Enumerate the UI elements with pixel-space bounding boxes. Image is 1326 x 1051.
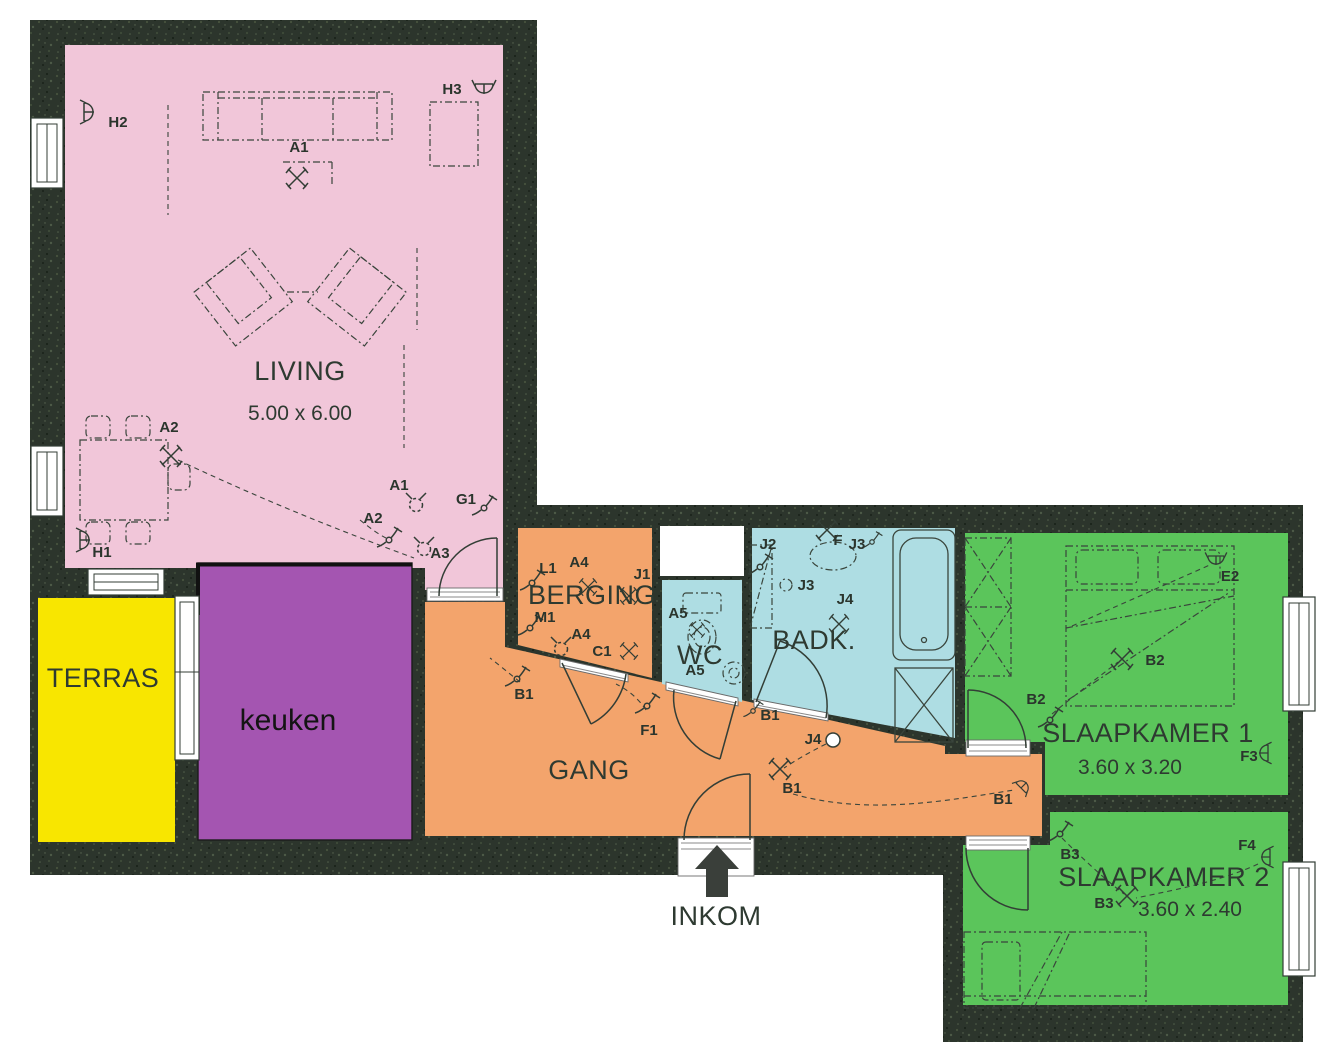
scanned-floor-plan-page: H2 H3 A1 A2 H1 A1 G1 A2 A3 L1 A4 J1 M1 A… — [0, 0, 1326, 1051]
symbol-label: A4 — [569, 554, 589, 571]
wc-label: WC — [677, 640, 723, 670]
keuken-label: keuken — [240, 704, 337, 737]
symbol-label: A1 — [389, 477, 408, 494]
room-living — [65, 45, 503, 590]
symbol-label: L1 — [539, 560, 557, 577]
floor-plan: H2 H3 A1 A2 H1 A1 G1 A2 A3 L1 A4 J1 M1 A… — [0, 0, 1326, 1051]
slaapkamer1-label: SLAAPKAMER 1 — [1042, 718, 1254, 748]
symbol-label: J4 — [805, 731, 822, 748]
symbol-label: A5 — [668, 605, 687, 622]
symbol-label: J3 — [798, 577, 815, 594]
badkamer-label: BADK. — [772, 625, 856, 655]
window-terras-keuken — [175, 596, 199, 760]
symbol-label: A4 — [571, 626, 591, 643]
symbol-label: A2 — [363, 510, 382, 527]
symbol-label: B3 — [1060, 846, 1079, 863]
symbol-label: H1 — [92, 544, 111, 561]
window-living-left-1 — [31, 118, 63, 188]
symbol-label: B1 — [993, 791, 1012, 808]
symbol-label: J2 — [760, 536, 777, 553]
symbol-label: F4 — [1238, 837, 1256, 854]
symbol-label: B1 — [760, 707, 779, 724]
symbol-label: B3 — [1094, 895, 1113, 912]
symbol-label: F — [833, 532, 842, 549]
window-slaapkamer1 — [1283, 597, 1315, 711]
symbol-label: B1 — [514, 686, 533, 703]
terras-label: TERRAS — [47, 663, 160, 693]
threshold-slaapkamer2 — [966, 836, 1030, 850]
symbol-label: M1 — [535, 609, 556, 626]
room-terras — [38, 598, 175, 842]
window-slaapkamer2 — [1283, 862, 1315, 976]
living-dims: 5.00 x 6.00 — [248, 402, 352, 425]
window-living-left-2 — [31, 446, 63, 516]
slaapkamer2-dims: 3.60 x 2.40 — [1138, 898, 1242, 921]
symbol-label: B2 — [1145, 652, 1164, 669]
shaft — [660, 526, 744, 576]
lamp-icon — [826, 733, 840, 747]
symbol-label: F3 — [1240, 748, 1258, 765]
symbol-label: J4 — [837, 591, 854, 608]
room-keuken — [198, 563, 412, 840]
window-living-terras — [88, 569, 164, 595]
symbol-label: E2 — [1221, 568, 1239, 585]
symbol-label: F1 — [640, 722, 658, 739]
symbol-label: J3 — [849, 536, 866, 553]
symbol-label: A1 — [289, 139, 308, 156]
berging-label: BERGING — [528, 580, 656, 610]
symbol-label: C1 — [592, 643, 611, 660]
slaapkamer2-label: SLAAPKAMER 2 — [1058, 862, 1270, 892]
symbol-label: B1 — [782, 780, 801, 797]
threshold-slaapkamer1 — [966, 740, 1030, 756]
gang-label: GANG — [548, 755, 630, 785]
living-label: LIVING — [254, 356, 346, 386]
symbol-label: H3 — [442, 81, 461, 98]
symbol-label: G1 — [456, 491, 476, 508]
symbol-label: H2 — [108, 114, 127, 131]
symbol-label: B2 — [1026, 691, 1045, 708]
symbol-label: A2 — [159, 419, 178, 436]
symbol-label: A3 — [430, 545, 449, 562]
inkom-label: INKOM — [670, 901, 761, 931]
slaapkamer1-dims: 3.60 x 3.20 — [1078, 756, 1182, 779]
